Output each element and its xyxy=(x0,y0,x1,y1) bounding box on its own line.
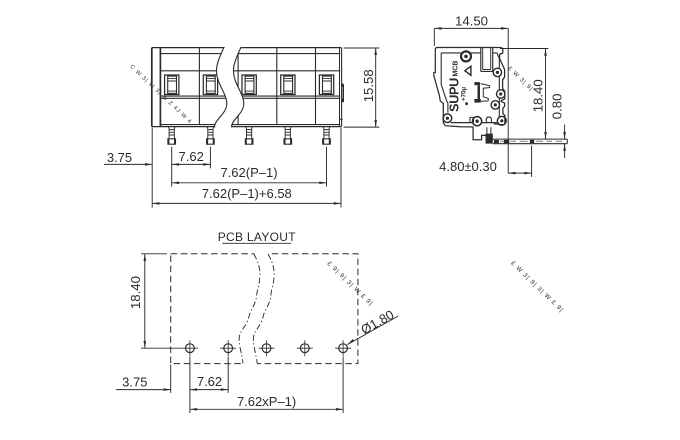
svg-text:Ø1.80: Ø1.80 xyxy=(358,307,396,337)
svg-text:18.40: 18.40 xyxy=(530,79,545,112)
svg-text:7.62: 7.62 xyxy=(197,374,222,389)
svg-text:MCB: MCB xyxy=(452,61,459,77)
svg-text:7.62(P–1)+6.58: 7.62(P–1)+6.58 xyxy=(202,186,292,201)
svg-text:0.80: 0.80 xyxy=(549,94,564,120)
svg-text:18.40: 18.40 xyxy=(128,276,143,309)
svg-text:PCB LAYOUT: PCB LAYOUT xyxy=(218,230,296,244)
svg-text:£ 9| 9| 3| W £ 9|: £ 9| 9| 3| W £ 9| xyxy=(326,260,375,307)
svg-text:3.75: 3.75 xyxy=(107,150,132,165)
svg-text:3.75: 3.75 xyxy=(122,375,147,390)
svg-text:SUPU: SUPU xyxy=(447,78,461,112)
svg-text:14.50: 14.50 xyxy=(455,13,488,28)
svg-text:£ W 3| 9| 3| W £ 9|: £ W 3| 9| 3| W £ 9| xyxy=(509,260,565,314)
svg-text:7.62xP–1): 7.62xP–1) xyxy=(237,394,296,409)
svg-text:15.58: 15.58 xyxy=(361,69,376,102)
svg-text:7.62(P–1): 7.62(P–1) xyxy=(220,165,277,180)
svg-text:7.62: 7.62 xyxy=(179,149,204,164)
svg-text:+70µ: +70µ xyxy=(461,87,468,101)
svg-text:4.80±0.30: 4.80±0.30 xyxy=(439,159,497,174)
